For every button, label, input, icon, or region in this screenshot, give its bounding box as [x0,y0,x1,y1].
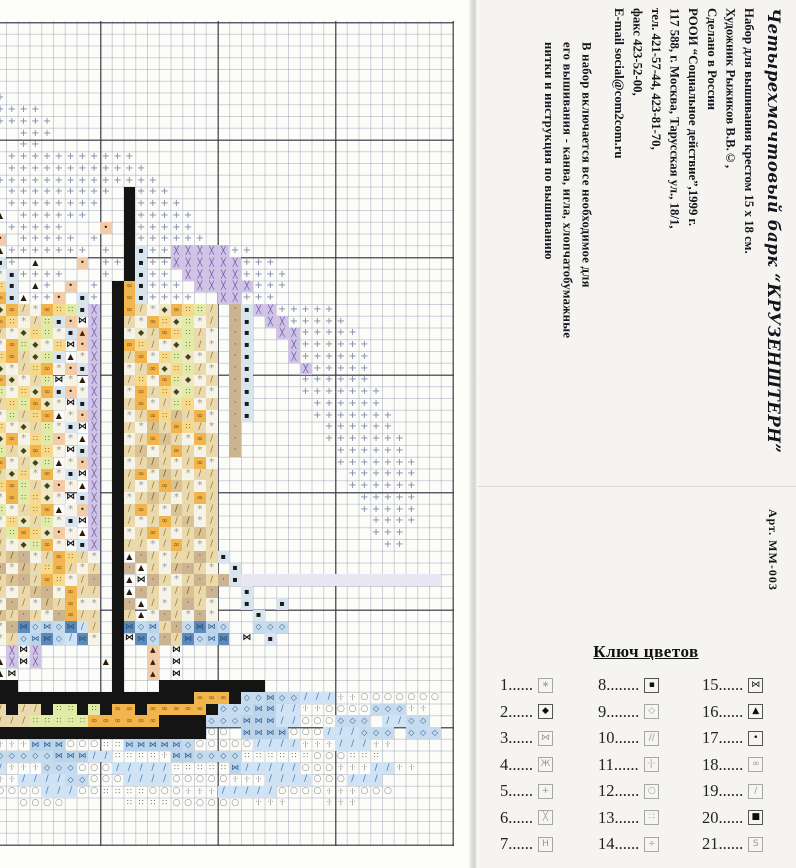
stitch-cell [417,574,429,586]
stitch-cell: • [77,457,89,469]
stitch-cell: / [171,469,183,481]
legend-item-label: 17...... [702,728,743,748]
legend-item-label: 11...... [598,755,639,775]
stitch-cell: ╳ [30,645,42,657]
stitch-cell: / [241,786,253,798]
stitch-cell: ○ [77,739,89,751]
stitch-cell: / [182,516,194,528]
stitch-cell: * [6,363,18,375]
stitch-cell: * [53,422,65,434]
stitch-cell: ∞ [124,715,136,727]
stitch-cell: ◇ [65,774,77,786]
stitch-cell: ·|· [312,704,324,716]
stitch-cell: + [41,210,53,222]
stitch-cell: ∷ [124,751,136,763]
stitch-cell: ○ [370,692,382,704]
stitch-cell: ·|· [335,798,347,810]
stitch-cell: ∷ [30,527,42,539]
stitch-cell: ▪ [135,292,147,304]
stitch-cell: ∞ [41,469,53,481]
stitch-cell: + [159,269,171,281]
stitch-cell [300,574,312,586]
legend-item: 13......∷ [598,805,702,832]
stitch-cell: ∷ [18,480,30,492]
stitch-cell: ∷ [135,339,147,351]
stitch-cell: / [159,762,171,774]
stitch-cell: / [6,551,18,563]
stitch-cell: + [323,375,335,387]
stitch-cell: ○ [18,786,30,798]
stitch-cell: * [194,398,206,410]
stitch-cell: ∷ [30,363,42,375]
stitch-cell: + [41,116,53,128]
stitch-cell [347,574,359,586]
stitch-cell: + [253,257,265,269]
stitch-cell: ·|· [253,774,265,786]
stitch-cell: ∞ [41,304,53,316]
legend-item-label: 20...... [702,808,743,828]
stitch-cell: + [18,128,30,140]
stitch-cell [112,339,124,351]
stitch-cell: ∷ [359,751,371,763]
stitch-cell: / [41,551,53,563]
stitch-cell: * [194,516,206,528]
stitch-symbol-icon: ■ [748,810,763,825]
stitch-cell: + [394,539,406,551]
stitch-cell: · [124,598,136,610]
stitch-cell: / [159,539,171,551]
legend-item-label: 10...... [598,728,639,748]
stitch-cell: + [265,292,277,304]
stitch-cell: + [300,339,312,351]
stitch-cell: ·|· [359,762,371,774]
page-fold [468,0,482,868]
stitch-cell [182,727,194,739]
stitch-cell: · [18,574,30,586]
stitch-cell: ∷ [135,798,147,810]
stitch-cell: + [147,292,159,304]
stitch-cell: ⋈ [241,727,253,739]
stitch-cell: + [265,269,277,281]
stitch-cell: * [194,316,206,328]
stitch-cell: ▲ [30,281,42,293]
stitch-cell: ◇ [53,621,65,633]
stitch-cell: · [171,621,183,633]
stitch-cell: ⋈ [124,621,136,633]
legend-item-label: 16...... [702,702,743,722]
stitch-cell: / [288,739,300,751]
stitch-cell: ▪ [241,410,253,422]
stitch-cell: ╳ [6,645,18,657]
stitch-cell: / [206,469,218,481]
stitch-cell: ·|· [323,739,335,751]
stitch-cell: ·|· [300,704,312,716]
stitch-cell: ○ [312,715,324,727]
stitch-cell: ▪ [241,339,253,351]
stitch-cell: + [65,151,77,163]
stitch-cell: / [206,527,218,539]
stitch-cell [41,704,53,716]
stitch-cell: ▪ [6,292,18,304]
stitch-cell: ∞ [53,563,65,575]
stitch-cell: + [100,257,112,269]
stitch-cell: ▲ [124,574,136,586]
stitch-cell: ◇ [77,774,89,786]
stitch-cell: / [194,563,206,575]
stitch-cell: + [194,234,206,246]
stitch-cell: ○ [182,798,194,810]
stitch-cell: + [370,516,382,528]
stitch-cell: * [53,516,65,528]
stitch-cell: + [359,410,371,422]
stitch-cell: ╳ [218,292,230,304]
stitch-cell: ○ [65,739,77,751]
stitch-cell: • [65,281,77,293]
legend-item-label: 5...... [500,781,533,801]
stitch-cell: / [41,774,53,786]
stitch-cell: * [88,551,100,563]
stitch-cell [124,245,136,257]
stitch-cell: ⋈ [171,751,183,763]
stitch-cell: ╳ [88,504,100,516]
stitch-cell: ∞ [6,304,18,316]
stitch-cell: + [30,163,42,175]
stitch-cell: ╳ [276,316,288,328]
stitch-cell [112,480,124,492]
stitch-cell: / [147,504,159,516]
stitch-cell: ∷ [65,551,77,563]
stitch-cell: ◇ [182,739,194,751]
stitch-cell: * [147,398,159,410]
stitch-cell: ▪ [65,516,77,528]
stitch-cell: / [18,363,30,375]
stitch-cell: ▲ [77,375,89,387]
stitch-cell: / [100,751,112,763]
stitch-cell: ╳ [171,245,183,257]
stitch-cell: / [18,598,30,610]
stitch-cell: ⋈ [77,422,89,434]
stitch-cell: ∷ [112,786,124,798]
stitch-cell: * [53,398,65,410]
stitch-cell: + [370,398,382,410]
stitch-cell: + [30,175,42,187]
stitch-cell: / [394,715,406,727]
stitch-cell: / [335,727,347,739]
stitch-cell: ∷ [6,316,18,328]
stitch-cell: ∞ [6,433,18,445]
stitch-cell: ▲ [18,292,30,304]
stitch-cell: * [171,457,183,469]
stitch-cell: ○ [300,715,312,727]
stitch-cell: * [206,339,218,351]
stitch-cell: · [88,574,100,586]
stitch-cell: ○ [182,774,194,786]
stitch-cell: + [359,386,371,398]
stitch-cell: + [394,492,406,504]
stitch-cell: ∞ [6,480,18,492]
stitch-cell: + [323,304,335,316]
stitch-cell: ▪ [135,269,147,281]
stitch-cell: / [171,633,183,645]
stitch-cell: ∞ [171,422,183,434]
stitch-cell: / [124,351,136,363]
stitch-cell [276,574,288,586]
stitch-cell: + [6,222,18,234]
stitch-cell: + [18,210,30,222]
stitch-cell: ▲ [147,657,159,669]
stitch-cell: ▪ [77,492,89,504]
stitch-cell: / [382,762,394,774]
stitch-cell: * [6,563,18,575]
stitch-cell: ◇ [359,727,371,739]
stitch-cell: + [88,198,100,210]
stitch-cell [429,574,441,586]
stitch-cell: ∷ [182,316,194,328]
stitch-cell: ○ [288,727,300,739]
stitch-cell: ∷ [53,574,65,586]
stitch-cell: / [171,563,183,575]
stitch-cell: ○ [323,751,335,763]
stitch-cell: / [41,786,53,798]
stitch-cell: * [65,480,77,492]
stitch-cell: / [276,704,288,716]
stitch-cell: ⋈ [241,633,253,645]
stitch-cell: + [65,187,77,199]
stitch-cell: ∞ [65,598,77,610]
stitch-cell: / [18,351,30,363]
stitch-cell: ∷ [30,492,42,504]
stitch-cell: + [253,281,265,293]
legend-item: 4......Ж [500,752,598,779]
stitch-cell: + [241,269,253,281]
stitch-cell: * [18,433,30,445]
stitch-cell: ▲ [147,645,159,657]
stitch-cell: / [147,386,159,398]
stitch-symbol-icon: ·|· [644,757,659,772]
stitch-cell: + [30,151,42,163]
stitch-cell: * [182,469,194,481]
art-number: Арт. ММ-003 [766,509,780,591]
stitch-cell: / [159,445,171,457]
stitch-cell: ◆ [159,304,171,316]
stitch-cell: + [370,480,382,492]
stitch-cell: / [18,504,30,516]
stitch-cell: ⋈ [276,727,288,739]
stitch-cell: + [359,375,371,387]
stitch-cell: + [18,175,30,187]
stitch-cell: ·|· [312,739,324,751]
stitch-cell: / [182,410,194,422]
stitch-cell: ▪ [229,563,241,575]
stitch-cell: + [312,304,324,316]
stitch-cell: * [6,328,18,340]
stitch-cell: ∞ [41,386,53,398]
stitch-cell: ∷ [18,339,30,351]
stitch-cell [41,727,53,739]
stitch-cell: * [147,469,159,481]
stitch-symbol-icon: ⋈ [538,731,553,746]
stitch-cell: • [65,363,77,375]
stitch-cell: + [112,163,124,175]
stitch-cell: + [18,116,30,128]
stitch-cell: / [347,774,359,786]
stitch-cell: ◇ [241,692,253,704]
stitch-cell: + [394,480,406,492]
stitch-cell: ○ [194,774,206,786]
stitch-cell [112,457,124,469]
stitch-cell: ∷ [53,339,65,351]
stitch-cell [65,692,77,704]
stitch-cell: ◇ [359,715,371,727]
stitch-cell: ○ [206,739,218,751]
stitch-cell: + [335,398,347,410]
stitch-cell: * [6,422,18,434]
stitch-cell: + [171,222,183,234]
legend-item: 18......∞ [702,752,792,779]
stitch-symbol-icon: ▪ [644,678,659,693]
stitch-cell: ◇ [206,715,218,727]
stitch-cell: ▪ [241,386,253,398]
stitch-cell: / [18,704,30,716]
stitch-cell: / [182,457,194,469]
stitch-cell: ╳ [288,328,300,340]
stitch-cell: ∷ [206,762,218,774]
stitch-cell: + [6,104,18,116]
stitch-cell: ⋈ [229,762,241,774]
stitch-cell: ∷ [135,786,147,798]
stitch-cell: ╳ [194,245,206,257]
stitch-cell: ∷ [88,704,100,716]
stitch-cell: * [171,492,183,504]
stitch-cell: * [159,551,171,563]
stitch-cell: + [53,245,65,257]
stitch-cell: ⋈ [171,645,183,657]
stitch-cell: · [182,563,194,575]
stitch-cell: + [370,445,382,457]
stitch-cell [77,704,89,716]
stitch-cell: ∷ [41,516,53,528]
stitch-cell: ○ [171,786,183,798]
stitch-cell: + [335,375,347,387]
stitch-cell: / [370,774,382,786]
stitch-cell: ╳ [171,257,183,269]
stitch-cell: ∞ [100,715,112,727]
stitch-cell: / [124,480,136,492]
stitch-cell: ⋈ [124,633,136,645]
stitch-cell: / [171,586,183,598]
stitch-cell: ∷ [171,328,183,340]
stitch-cell: / [265,762,277,774]
stitch-cell: ·|· [30,762,42,774]
stitch-cell: ⋈ [171,668,183,680]
stitch-cell: ⋈ [147,621,159,633]
stitch-cell [112,281,124,293]
legend-item: 16......▲ [702,699,792,726]
stitch-cell: ·|· [406,704,418,716]
stitch-cell [112,621,124,633]
stitch-cell [406,574,418,586]
stitch-cell: ╳ [206,245,218,257]
stitch-cell: ∷ [135,375,147,387]
stitch-cell: ∞ [194,704,206,716]
stitch-cell: + [159,198,171,210]
legend-item: 5......+ [500,778,598,805]
stitch-cell: ◇ [218,715,230,727]
stitch-cell: + [100,175,112,187]
stitch-cell: ◆ [135,328,147,340]
stitch-cell: / [300,774,312,786]
stitch-cell: * [159,339,171,351]
stitch-cell: ╳ [30,657,42,669]
stitch-cell: / [124,316,136,328]
stitch-symbol-icon: ╳ [538,810,553,825]
stitch-cell: ∞ [194,492,206,504]
stitch-cell: ∞ [65,610,77,622]
stitch-cell: / [335,739,347,751]
stitch-cell: * [6,457,18,469]
stitch-cell: + [241,245,253,257]
stitch-cell: ⋈ [30,739,42,751]
stitch-cell: * [18,375,30,387]
stitch-cell [112,657,124,669]
stitch-cell: ⋈ [65,445,77,457]
stitch-cell: + [30,222,42,234]
stitch-cell: + [347,386,359,398]
stitch-cell: + [182,292,194,304]
stitch-cell: + [253,292,265,304]
stitch-cell: ∷ [124,798,136,810]
stitch-cell: / [300,692,312,704]
stitch-cell: ⋈ [182,633,194,645]
stitch-cell: ╳ [206,257,218,269]
stitch-cell: ⋈ [147,739,159,751]
kit-info-line: E-mail social@com2com.ru [609,8,628,593]
stitch-cell: + [124,175,136,187]
stitch-cell: ∞ [171,304,183,316]
stitch-symbol-icon: ○ [644,784,659,799]
stitch-cell: + [347,422,359,434]
stitch-cell [159,715,171,727]
stitch-cell: ○ [417,692,429,704]
stitch-cell: ▪ [241,351,253,363]
stitch-cell: / [159,433,171,445]
stitch-cell: ○ [194,798,206,810]
stitch-cell: / [18,774,30,786]
stitch-cell: + [147,257,159,269]
stitch-cell [53,692,65,704]
stitch-cell: + [147,210,159,222]
stitch-cell: ◇ [406,715,418,727]
stitch-cell: ╳ [88,316,100,328]
stitch-cell: ▪ [241,586,253,598]
stitch-cell: ╳ [229,269,241,281]
stitch-cell: ○ [276,786,288,798]
stitch-cell: ∷ [41,328,53,340]
stitch-cell [171,680,183,692]
stitch-cell: / [182,504,194,516]
stitch-cell: ∞ [147,363,159,375]
stitch-cell: ·|· [18,739,30,751]
stitch-cell: + [312,363,324,375]
stitch-cell: / [65,786,77,798]
stitch-cell: * [147,610,159,622]
stitch-cell: + [18,222,30,234]
stitch-cell: ∞ [41,363,53,375]
stitch-cell: ○ [147,786,159,798]
stitch-cell: · [229,339,241,351]
stitch-cell: ∷ [65,715,77,727]
legend-item: 11......·|· [598,752,702,779]
